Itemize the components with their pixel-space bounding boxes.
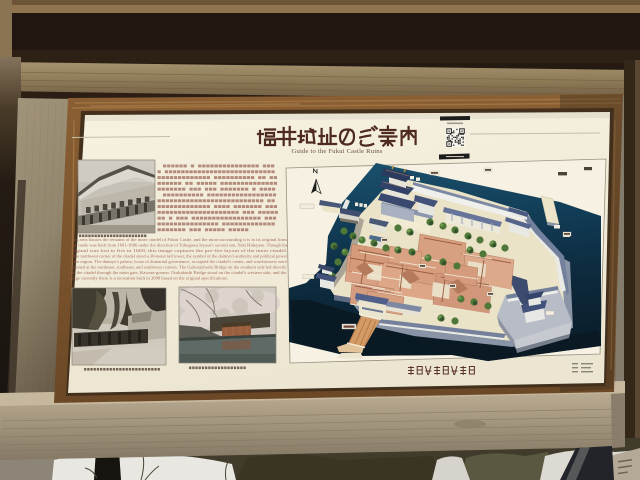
svg-text:bridge currently there is a re: bridge currently there is a recreation b… xyxy=(68,275,228,280)
svg-text:Guide to the Fukui Castle Ruin: Guide to the Fukui Castle Ruins xyxy=(291,148,382,155)
